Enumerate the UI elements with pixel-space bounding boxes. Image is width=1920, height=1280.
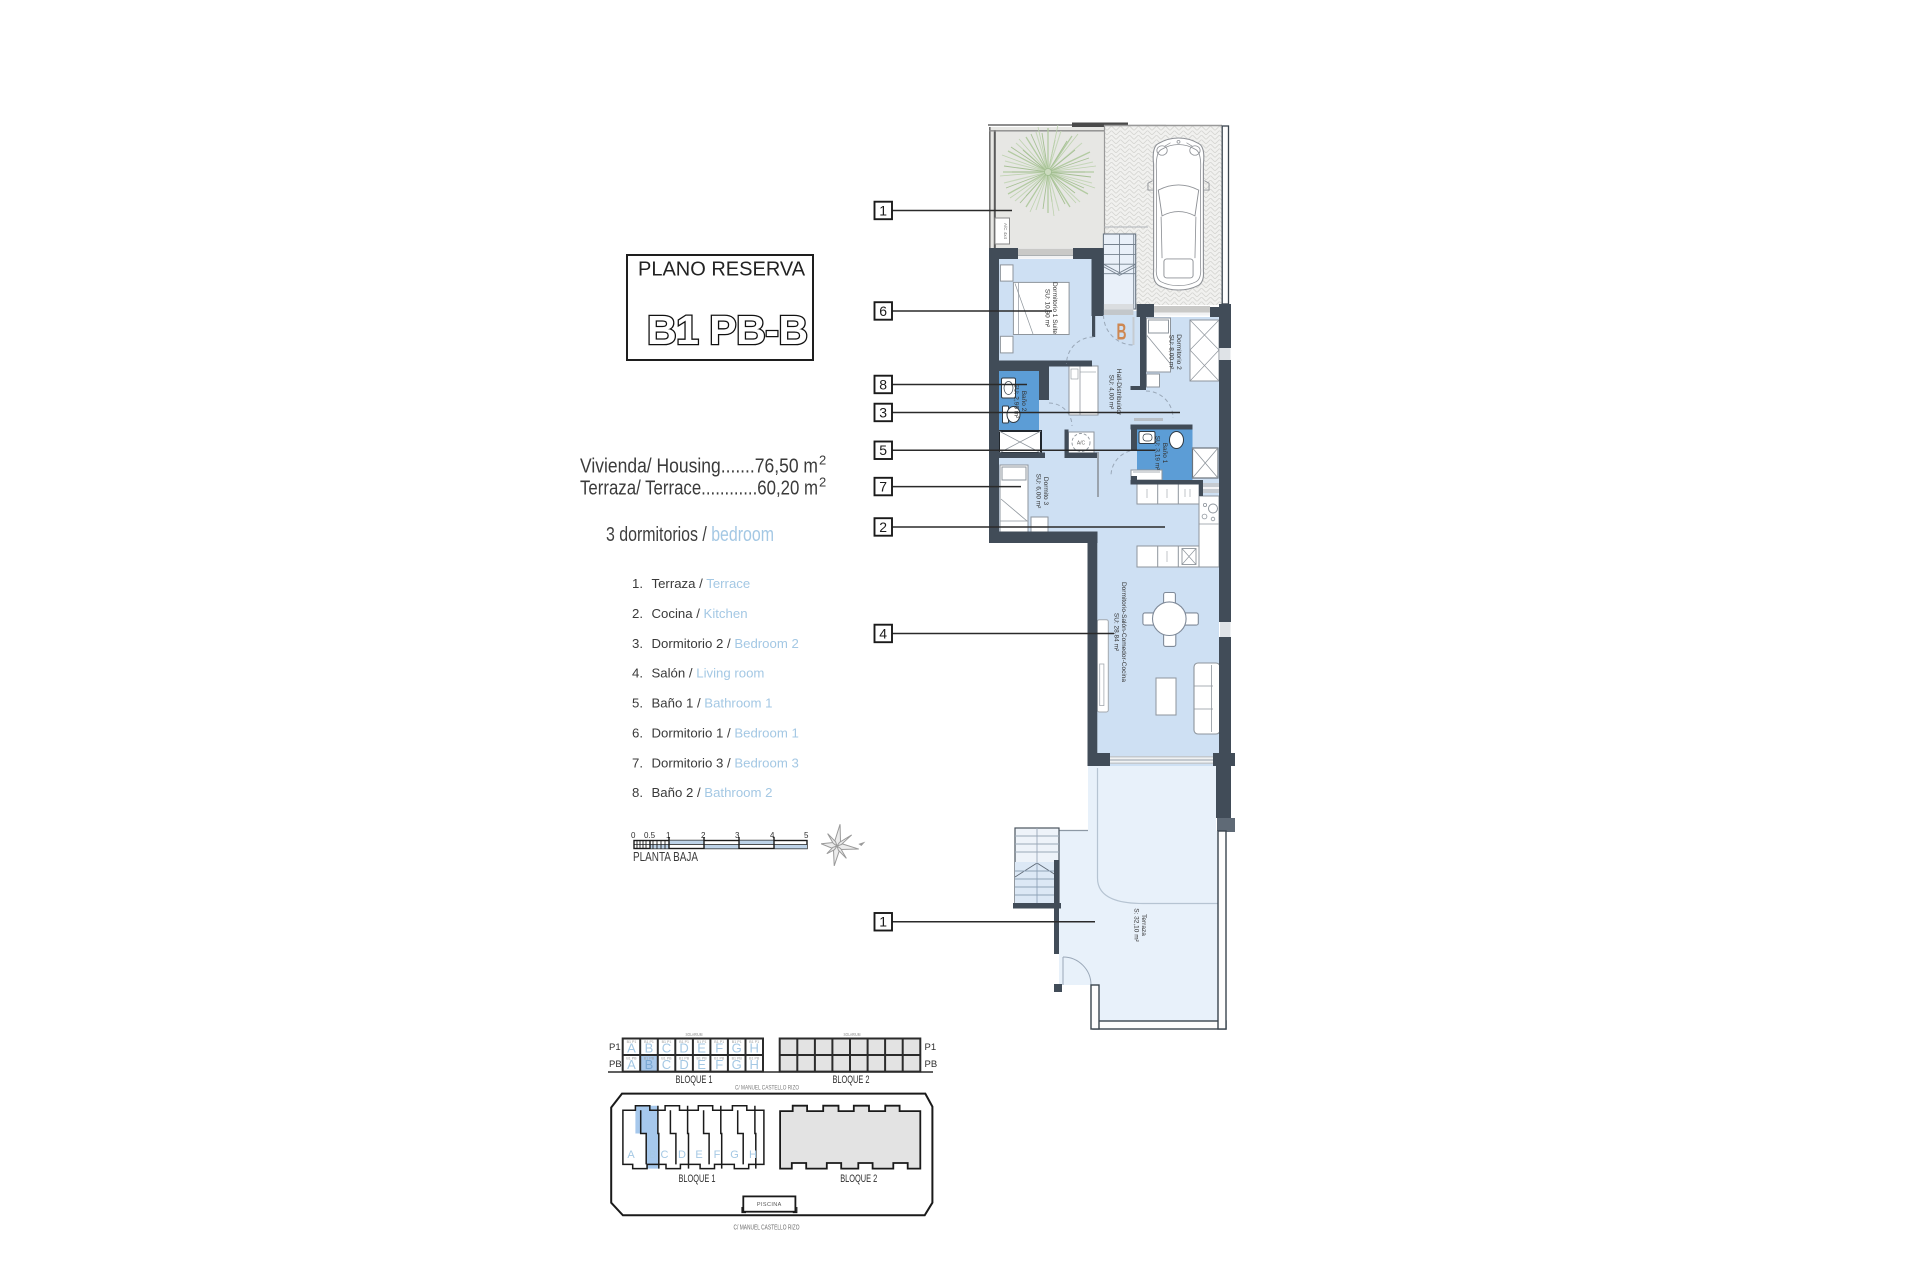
svg-text:A/C 4x4: A/C 4x4 (1003, 223, 1008, 240)
svg-text:1: 1 (879, 202, 887, 218)
svg-text:6: 6 (879, 303, 887, 319)
svg-text:Dormito 3SU: 6,00 m²: Dormito 3SU: 6,00 m² (1035, 474, 1050, 510)
svg-text:Baño 1 / Bathroom 1: Baño 1 / Bathroom 1 (652, 696, 773, 711)
svg-text:BLOQUE 1: BLOQUE 1 (676, 1074, 713, 1086)
svg-text:Terraza/ Terrace............60: Terraza/ Terrace............60,20 m (580, 478, 818, 500)
svg-text:Dormitorio 2 / Bedroom 2: Dormitorio 2 / Bedroom 2 (652, 636, 799, 651)
svg-text:2: 2 (879, 519, 887, 535)
svg-text:Salón / Living room: Salón / Living room (652, 666, 765, 681)
svg-text:B1 PB: B1 PB (626, 1057, 637, 1061)
svg-text:BLOQUE 2: BLOQUE 2 (833, 1074, 870, 1086)
svg-text:7.: 7. (632, 755, 643, 770)
svg-text:SOLARIUM: SOLARIUM (686, 1032, 703, 1038)
svg-text:B1 PB: B1 PB (644, 1057, 655, 1061)
svg-text:P1: P1 (609, 1042, 621, 1053)
svg-text:Dormitorio 1 SuiteSU: 10,90 m²: Dormitorio 1 SuiteSU: 10,90 m² (1044, 282, 1059, 334)
svg-text:B1 PB-B: B1 PB-B (647, 307, 808, 353)
svg-text:Dormitorio 3 / Bedroom 3: Dormitorio 3 / Bedroom 3 (652, 755, 799, 770)
svg-text:B1 PB: B1 PB (732, 1057, 743, 1061)
svg-text:5: 5 (804, 831, 809, 840)
svg-text:PLANTA BAJA: PLANTA BAJA (633, 849, 698, 864)
svg-text:A/C: A/C (1077, 441, 1086, 447)
svg-text:3.: 3. (632, 636, 643, 651)
svg-text:G: G (730, 1149, 739, 1161)
svg-text:PB: PB (609, 1059, 622, 1070)
svg-text:B1 P1: B1 P1 (714, 1040, 724, 1044)
svg-text:6.: 6. (632, 725, 643, 740)
svg-text:Terraza / Terrace: Terraza / Terrace (652, 576, 751, 591)
svg-text:0.5: 0.5 (644, 831, 656, 840)
svg-text:1: 1 (879, 914, 887, 930)
svg-text:B1 PB: B1 PB (661, 1057, 672, 1061)
svg-text:4: 4 (879, 625, 887, 641)
svg-text:2: 2 (819, 453, 826, 468)
svg-text:B1 P1: B1 P1 (644, 1040, 654, 1044)
svg-text:2: 2 (819, 475, 826, 490)
svg-text:Dormitorio 2SU: 8,00 m²: Dormitorio 2SU: 8,00 m² (1168, 334, 1183, 370)
svg-text:B1 PB: B1 PB (696, 1057, 707, 1061)
svg-text:A: A (627, 1149, 635, 1161)
svg-text:4.: 4. (632, 666, 643, 681)
svg-text:D: D (678, 1149, 686, 1161)
svg-text:B1 PB: B1 PB (679, 1057, 690, 1061)
svg-text:E: E (695, 1149, 702, 1161)
svg-text:B1 P1: B1 P1 (732, 1040, 742, 1044)
svg-text:H: H (749, 1149, 757, 1161)
svg-text:B1 PB: B1 PB (749, 1057, 760, 1061)
svg-text:Vivienda/ Housing.......76,50: Vivienda/ Housing.......76,50 m (580, 456, 818, 478)
svg-text:B1 P1: B1 P1 (679, 1040, 689, 1044)
svg-text:5: 5 (879, 442, 887, 458)
svg-text:SOLARIUM: SOLARIUM (844, 1032, 861, 1038)
svg-text:B1 P1: B1 P1 (662, 1040, 672, 1044)
svg-text:C/ MANUEL CASTELLO RIZO: C/ MANUEL CASTELLO RIZO (734, 1225, 800, 1232)
svg-text:B1 PB: B1 PB (714, 1057, 725, 1061)
svg-text:3: 3 (879, 404, 887, 420)
svg-text:Dormitorio 1 / Bedroom 1: Dormitorio 1 / Bedroom 1 (652, 725, 799, 740)
svg-text:F: F (714, 1149, 721, 1161)
svg-text:B1 P1: B1 P1 (697, 1040, 707, 1044)
svg-text:5.: 5. (632, 696, 643, 711)
svg-text:0: 0 (631, 831, 636, 840)
svg-text:1.: 1. (632, 576, 643, 591)
svg-text:3 dormitorios / bedroom: 3 dormitorios / bedroom (606, 524, 774, 546)
svg-text:PB: PB (925, 1059, 938, 1070)
svg-text:B: B (649, 1149, 656, 1161)
svg-text:8.: 8. (632, 785, 643, 800)
svg-text:Baño 2 / Bathroom 2: Baño 2 / Bathroom 2 (652, 785, 773, 800)
svg-text:C: C (661, 1149, 669, 1161)
svg-text:P1: P1 (925, 1042, 937, 1053)
svg-text:B1 P1: B1 P1 (749, 1040, 759, 1044)
svg-text:BLOQUE 1: BLOQUE 1 (679, 1173, 716, 1185)
svg-text:PISCINA: PISCINA (757, 1202, 782, 1208)
svg-text:B1 P1: B1 P1 (627, 1040, 637, 1044)
svg-text:Cocina / Kitchen: Cocina / Kitchen (652, 606, 748, 621)
svg-text:B: B (1117, 319, 1127, 345)
svg-text:2.: 2. (632, 606, 643, 621)
svg-text:8: 8 (879, 376, 887, 392)
svg-text:PLANO RESERVA: PLANO RESERVA (638, 259, 806, 281)
svg-text:C/ MANUEL CASTELLO RIZO: C/ MANUEL CASTELLO RIZO (735, 1085, 799, 1092)
svg-text:Hall-DistribuidorSU: 4,00 m²: Hall-DistribuidorSU: 4,00 m² (1108, 369, 1123, 416)
svg-text:BLOQUE 2: BLOQUE 2 (840, 1173, 877, 1185)
svg-text:7: 7 (879, 479, 887, 495)
